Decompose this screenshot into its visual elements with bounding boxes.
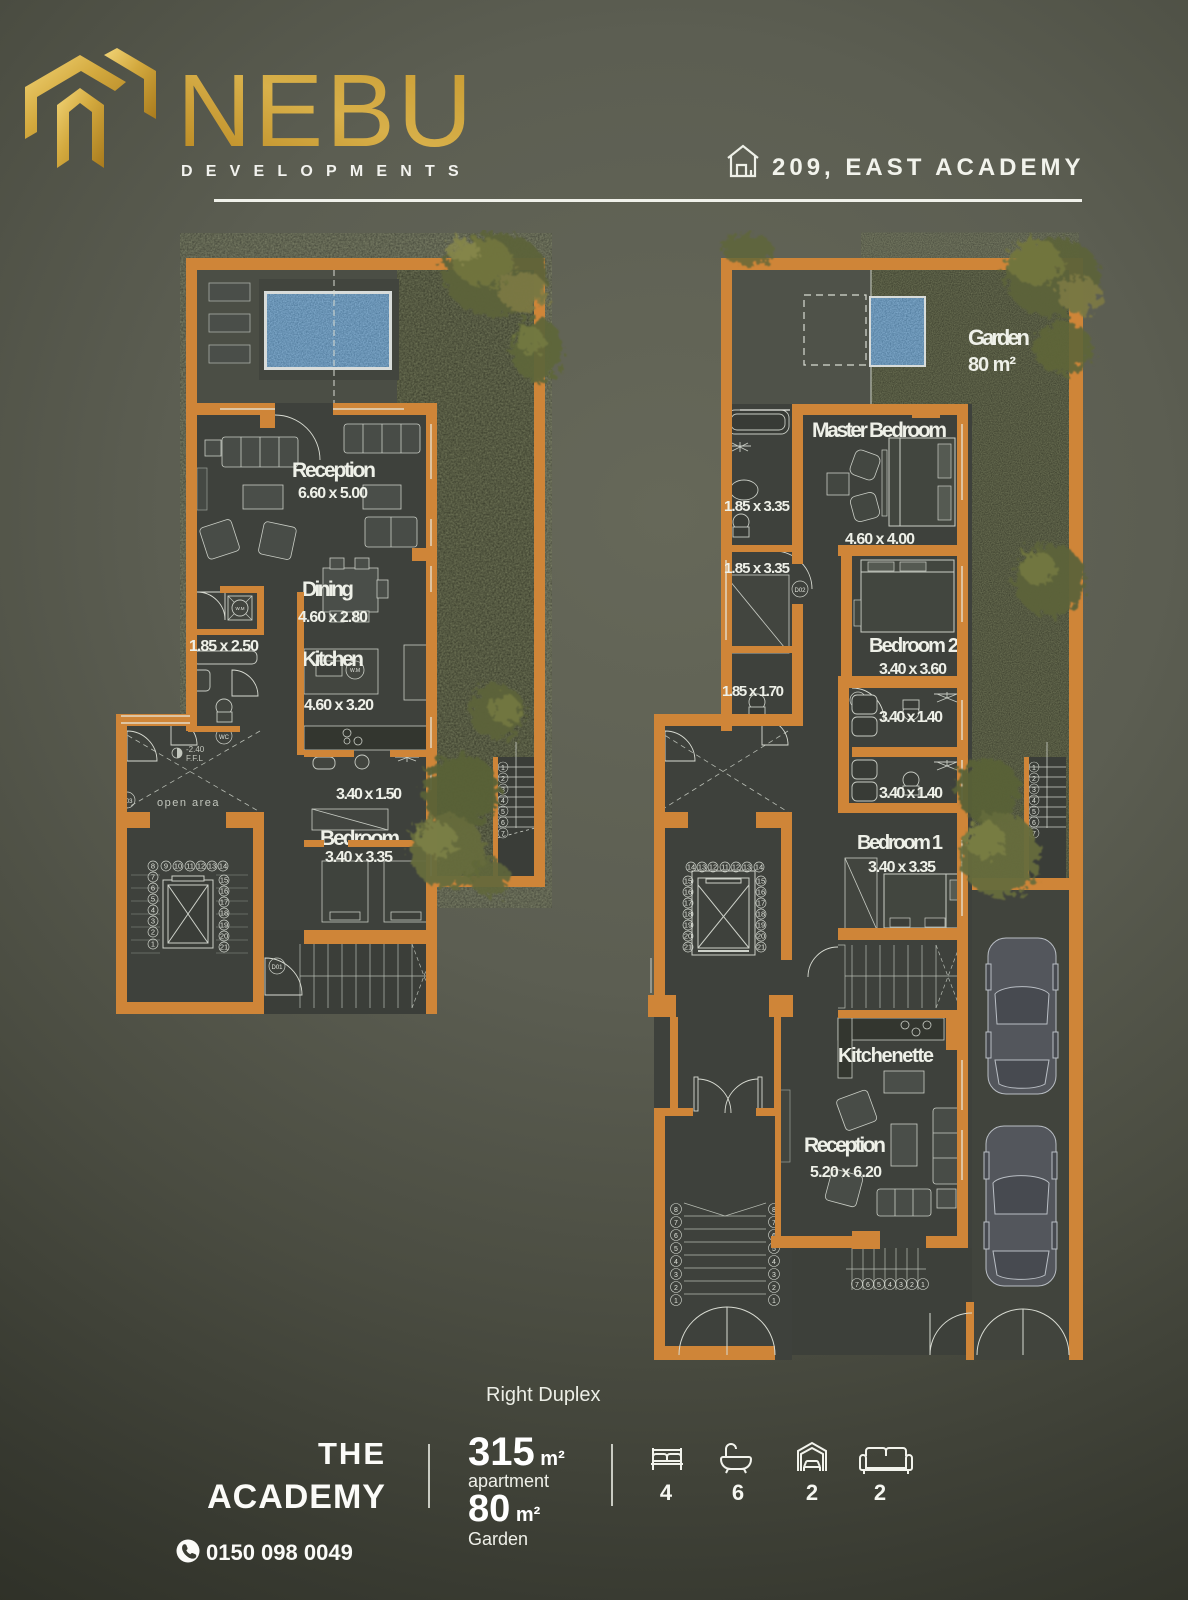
svg-text:8: 8 (151, 862, 155, 871)
svg-text:Reception: Reception (804, 1134, 886, 1157)
svg-text:9: 9 (164, 862, 168, 871)
svg-text:D02: D02 (794, 588, 806, 594)
svg-text:5: 5 (1032, 809, 1036, 816)
svg-text:5: 5 (151, 895, 155, 904)
svg-text:21: 21 (757, 943, 765, 952)
svg-text:DEVELOPMENTS: DEVELOPMENTS (181, 163, 472, 180)
svg-text:6: 6 (501, 820, 505, 827)
svg-text:7: 7 (151, 873, 155, 882)
svg-text:open area: open area (157, 797, 220, 809)
svg-text:2: 2 (806, 1480, 818, 1505)
svg-text:17: 17 (757, 899, 765, 908)
svg-text:21: 21 (684, 943, 692, 952)
svg-text:16: 16 (684, 888, 692, 897)
svg-text:18: 18 (684, 910, 692, 919)
svg-text:6: 6 (866, 1282, 870, 1289)
svg-text:13: 13 (743, 863, 751, 872)
svg-text:16: 16 (757, 888, 765, 897)
svg-text:21: 21 (220, 943, 228, 952)
svg-text:2: 2 (151, 928, 155, 937)
svg-text:1.85 x 1.70: 1.85 x 1.70 (722, 683, 784, 700)
svg-text:2: 2 (874, 1480, 886, 1505)
svg-text:4: 4 (1032, 798, 1036, 805)
svg-text:5.20 x 6.20: 5.20 x 6.20 (810, 1164, 882, 1181)
svg-text:3: 3 (899, 1282, 903, 1289)
svg-text:19: 19 (684, 921, 692, 930)
svg-text:4: 4 (660, 1480, 673, 1505)
svg-text:6: 6 (732, 1480, 744, 1505)
svg-text:2: 2 (910, 1282, 914, 1289)
svg-text:4: 4 (674, 1259, 678, 1266)
svg-text:11: 11 (186, 862, 194, 871)
svg-text:11: 11 (721, 863, 729, 872)
svg-text:4: 4 (151, 906, 155, 915)
svg-text:16: 16 (220, 887, 228, 896)
svg-text:3: 3 (772, 1272, 776, 1279)
svg-text:209, EAST ACADEMY: 209, EAST ACADEMY (772, 154, 1085, 181)
svg-text:20: 20 (757, 932, 765, 941)
svg-text:1: 1 (1032, 765, 1036, 772)
svg-text:80 m²: 80 m² (968, 354, 1016, 376)
svg-text:Dining: Dining (302, 578, 354, 601)
svg-text:19: 19 (757, 921, 765, 930)
svg-text:3: 3 (151, 917, 155, 926)
svg-text:18: 18 (757, 910, 765, 919)
svg-text:4.60 x 3.20: 4.60 x 3.20 (304, 697, 374, 714)
svg-text:3: 3 (501, 787, 505, 794)
svg-text:Master Bedroom: Master Bedroom (812, 419, 947, 442)
svg-text:15: 15 (684, 877, 692, 886)
svg-text:2: 2 (501, 776, 505, 783)
svg-text:1: 1 (501, 765, 505, 772)
svg-text:Bedroom 1: Bedroom 1 (857, 832, 943, 854)
svg-text:F.F.L: F.F.L (186, 754, 203, 763)
svg-text:15: 15 (757, 877, 765, 886)
svg-text:5: 5 (674, 1246, 678, 1253)
svg-text:7: 7 (674, 1220, 678, 1227)
svg-text:19: 19 (220, 921, 228, 930)
svg-text:3.40 x 3.35: 3.40 x 3.35 (325, 849, 393, 866)
svg-text:3.40 x 1.40: 3.40 x 1.40 (879, 785, 943, 802)
svg-text:Kitchenette: Kitchenette (838, 1045, 934, 1067)
svg-text:3.40 x 3.35: 3.40 x 3.35 (868, 859, 936, 876)
svg-text:17: 17 (684, 899, 692, 908)
svg-text:7: 7 (855, 1282, 859, 1289)
svg-text:20: 20 (220, 932, 228, 941)
svg-text:1: 1 (772, 1298, 776, 1305)
svg-text:Bedroom 2: Bedroom 2 (869, 635, 959, 657)
svg-text:NEBU: NEBU (177, 53, 475, 168)
svg-text:17: 17 (220, 898, 228, 907)
svg-text:4: 4 (888, 1282, 892, 1289)
svg-text:7: 7 (501, 831, 505, 838)
svg-text:Reception: Reception (292, 459, 376, 482)
svg-text:12: 12 (197, 862, 205, 871)
svg-text:WC: WC (219, 735, 230, 741)
svg-text:5: 5 (877, 1282, 881, 1289)
svg-text:3: 3 (674, 1272, 678, 1279)
svg-text:2: 2 (772, 1285, 776, 1292)
svg-text:1: 1 (921, 1282, 925, 1289)
svg-text:1.85 x 3.35: 1.85 x 3.35 (724, 560, 790, 577)
svg-text:3.40 x 1.40: 3.40 x 1.40 (879, 709, 943, 726)
svg-text:0150 098 0049: 0150 098 0049 (206, 1540, 353, 1565)
svg-text:4: 4 (772, 1259, 776, 1266)
svg-text:12: 12 (709, 863, 717, 872)
svg-text:3.40 x 1.50: 3.40 x 1.50 (336, 786, 402, 803)
svg-text:15: 15 (220, 876, 228, 885)
svg-text:10: 10 (174, 862, 182, 871)
svg-text:5: 5 (501, 809, 505, 816)
svg-text:8: 8 (674, 1207, 678, 1214)
svg-text:14: 14 (219, 862, 227, 871)
svg-text:6: 6 (674, 1233, 678, 1240)
svg-text:6: 6 (1032, 820, 1036, 827)
svg-text:1.85 x 2.50: 1.85 x 2.50 (189, 638, 259, 655)
svg-text:2: 2 (674, 1285, 678, 1292)
svg-text:12: 12 (732, 863, 740, 872)
svg-text:3: 3 (1032, 787, 1036, 794)
svg-text:13: 13 (698, 863, 706, 872)
svg-text:1: 1 (674, 1298, 678, 1305)
svg-text:-2.40: -2.40 (186, 745, 205, 754)
svg-text:4: 4 (501, 798, 505, 805)
svg-text:6: 6 (151, 884, 155, 893)
svg-text:20: 20 (684, 932, 692, 941)
svg-text:Kitchen: Kitchen (302, 648, 364, 671)
svg-text:13: 13 (208, 862, 216, 871)
svg-text:14: 14 (755, 863, 763, 872)
svg-text:Garden: Garden (968, 325, 1030, 350)
svg-text:4.60 x 2.80: 4.60 x 2.80 (298, 609, 368, 626)
svg-text:14: 14 (687, 863, 695, 872)
svg-text:D01: D01 (271, 965, 283, 971)
svg-text:1: 1 (151, 940, 155, 949)
svg-text:2: 2 (1032, 776, 1036, 783)
svg-text:6.60 x 5.00: 6.60 x 5.00 (298, 485, 368, 502)
svg-text:W.M: W.M (236, 606, 245, 611)
svg-text:18: 18 (220, 909, 228, 918)
svg-text:1.85 x 3.35: 1.85 x 3.35 (724, 498, 790, 515)
svg-text:3.40 x 3.60: 3.40 x 3.60 (879, 661, 947, 678)
